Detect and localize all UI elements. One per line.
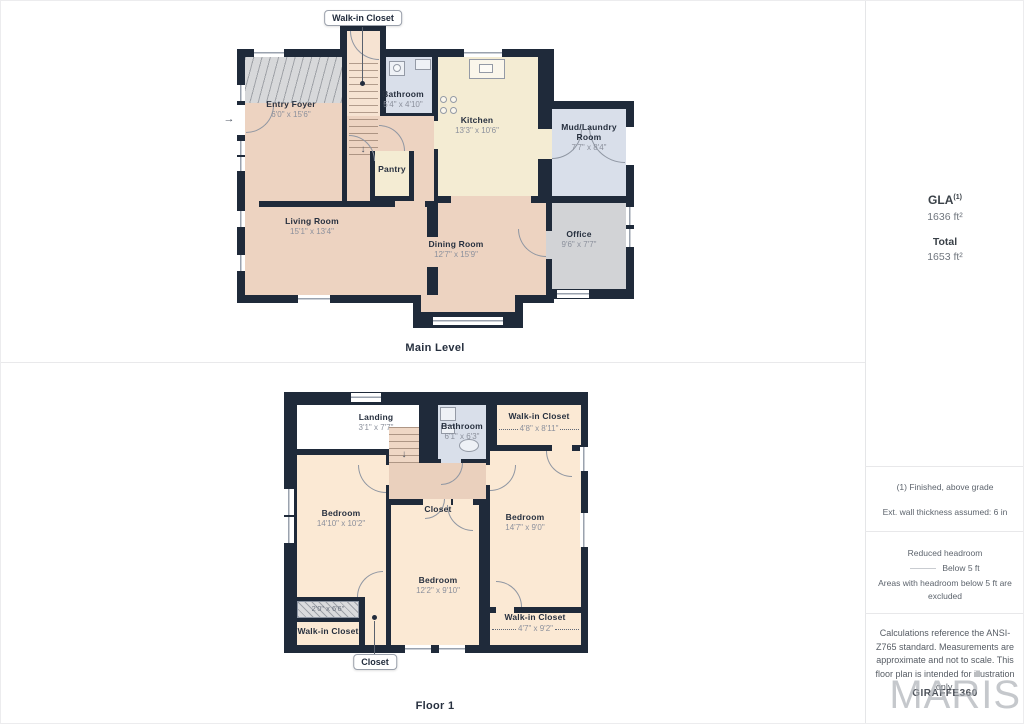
leader-line <box>374 621 375 655</box>
sidebar-separator <box>865 466 1024 467</box>
sidebar-separator <box>865 613 1024 614</box>
closet-callout: Closet <box>353 654 397 670</box>
room-label: Closet <box>424 505 451 515</box>
leader-line <box>362 27 363 83</box>
entry-door <box>237 105 245 135</box>
room-label: Mud/Laundry Room 7'7" x 8'4" <box>549 123 629 152</box>
floor-1-title: Floor 1 <box>416 700 455 712</box>
legend-note: Areas with headroom below 5 ft are exclu… <box>875 577 1015 603</box>
closet-strip-floor <box>365 597 386 645</box>
window <box>284 489 294 515</box>
stove-burner-icon <box>450 107 457 114</box>
sidebar-separator <box>865 531 1024 532</box>
stairs-down-arrow-icon: ↓ <box>361 144 366 155</box>
kitchen-sink-basin-icon <box>479 64 493 73</box>
total-value: 1653 ft² <box>867 251 1023 263</box>
window <box>237 85 245 101</box>
window <box>237 211 245 227</box>
foyer-stairs <box>245 57 342 103</box>
total-label: Total <box>867 236 1023 248</box>
window <box>580 513 588 547</box>
gla-label: GLA(1) <box>867 193 1023 207</box>
opening <box>434 121 438 149</box>
window <box>557 290 589 298</box>
entry-arrow-icon: → <box>224 113 235 125</box>
window <box>237 141 245 155</box>
window <box>439 645 465 653</box>
note-finished: (1) Finished, above grade <box>867 481 1023 494</box>
window <box>433 317 503 325</box>
room-label: Bedroom 14'10" x 10'2" <box>317 509 365 529</box>
room-label: Pantry <box>378 165 406 175</box>
pantry-floor <box>370 151 414 201</box>
room-label: Bathroom 5'4" x 4'10" <box>382 90 424 110</box>
gla-footnote-marker: (1) <box>953 194 962 201</box>
room-label: Bedroom 14'7" x 9'0" <box>505 513 544 533</box>
stairs-down-arrow-icon: ↓ <box>402 449 407 460</box>
room-label: Bathroom 6'1" x 6'3" <box>441 422 483 442</box>
below-5ft-line-icon <box>910 568 936 569</box>
window <box>254 49 284 57</box>
hall-floor <box>389 463 486 499</box>
opening <box>451 196 531 203</box>
window <box>237 255 245 271</box>
stove-burner-icon <box>440 96 447 103</box>
room-label: Landing 3'1" x 7'7" <box>359 413 394 433</box>
room-label: Dining Room 12'7" x 15'9" <box>428 240 483 260</box>
window <box>284 517 294 543</box>
bathroom-sink-basin-icon <box>393 64 401 72</box>
main-level-title: Main Level <box>405 342 464 354</box>
room-label: Kitchen 13'3" x 10'6" <box>455 116 499 136</box>
shower-icon <box>440 407 456 421</box>
legend-row: Below 5 ft <box>867 562 1023 575</box>
bathroom-shelf-icon <box>415 59 431 70</box>
room-label: Living Room 15'1" x 13'4" <box>285 217 339 237</box>
opening <box>546 231 552 259</box>
legend-item: Below 5 ft <box>942 563 979 573</box>
walk-in-closet-callout: Walk-in Closet <box>324 10 402 26</box>
sidebar-divider <box>865 1 866 724</box>
stove-burner-icon <box>450 96 457 103</box>
maris-watermark: MARIS <box>889 675 1021 715</box>
gla-value: 1636 ft² <box>867 211 1023 223</box>
window <box>351 393 381 402</box>
leader-dot <box>372 615 377 620</box>
opening <box>245 201 259 207</box>
room-label: Walk-in Closet <box>297 627 358 637</box>
window <box>237 157 245 171</box>
leader-dot <box>360 81 365 86</box>
room-label: Walk-in Closet <box>508 412 569 422</box>
note-wall-thickness: Ext. wall thickness assumed: 6 in <box>867 506 1023 519</box>
window <box>298 295 330 303</box>
opening <box>386 465 389 485</box>
window <box>580 447 588 471</box>
strip-dims-label: 2'0" x 6'6" <box>312 604 345 613</box>
window <box>626 229 634 247</box>
dining-bump-floor <box>421 295 515 312</box>
opening <box>395 201 425 207</box>
window <box>464 49 502 57</box>
room-label: Entry Foyer 6'0" x 15'6" <box>266 100 315 120</box>
room-label: Office 9'6" x 7'7" <box>562 230 597 250</box>
window <box>626 207 634 225</box>
dims-dotted: 4'7" x 9'2" <box>490 625 581 634</box>
room-label: Bedroom 12'2" x 9'10" <box>416 576 460 596</box>
room-label: Walk-in Closet <box>504 613 565 623</box>
dims-dotted: 4'8" x 8'11" <box>497 425 581 434</box>
window <box>405 645 431 653</box>
gla-block: GLA(1) 1636 ft² Total 1653 ft² <box>867 193 1023 263</box>
legend-title: Reduced headroom <box>867 547 1023 560</box>
stove-burner-icon <box>440 107 447 114</box>
floor-plan-page: ↓ <box>0 0 1024 724</box>
